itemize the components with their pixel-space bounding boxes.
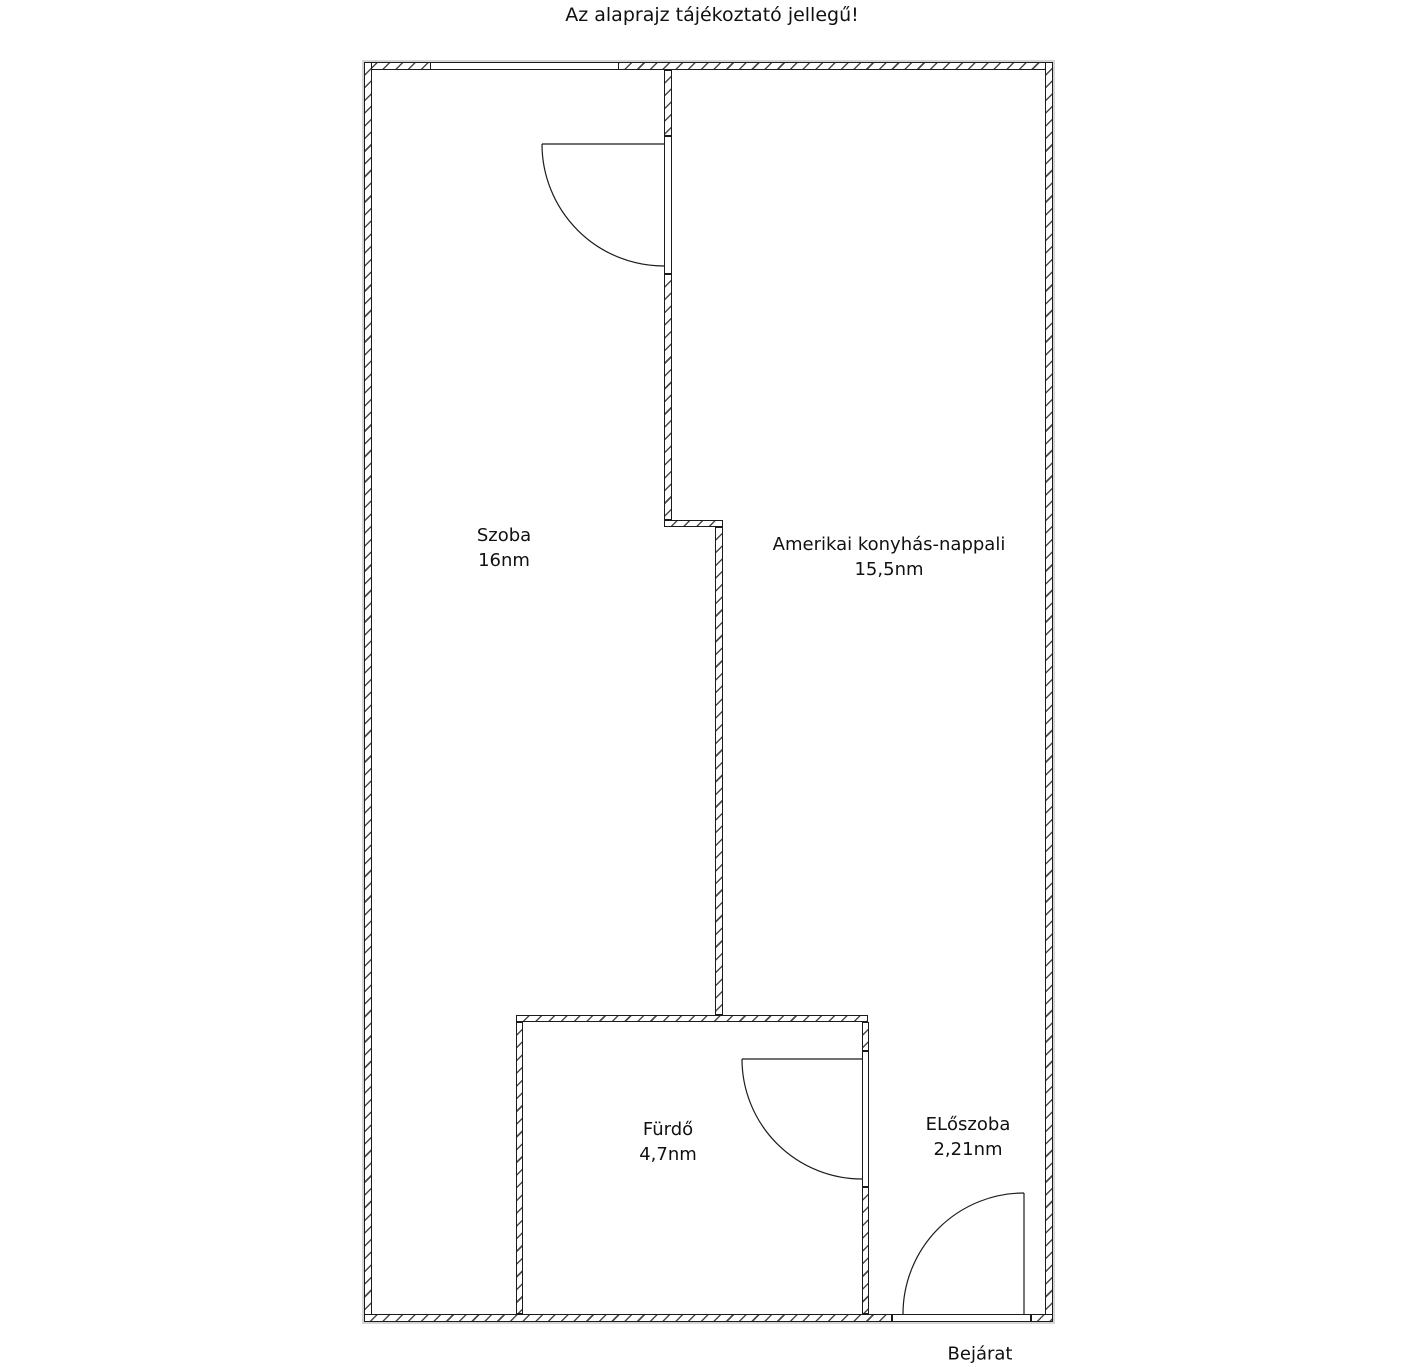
room-area-nappali: 15,5nm bbox=[773, 557, 1006, 582]
bathroom-wall-right-lower bbox=[862, 1187, 869, 1314]
room-label-nappali: Amerikai konyhás-nappali 15,5nm bbox=[773, 532, 1006, 582]
divider-wall-mid bbox=[664, 274, 672, 520]
outer-wall-bottom-left bbox=[364, 1314, 892, 1322]
divider-wall-upper bbox=[664, 70, 672, 136]
divider-wall-jog bbox=[664, 520, 723, 527]
door-szoba-jamb bbox=[664, 136, 672, 274]
room-area-furdo: 4,7nm bbox=[639, 1142, 697, 1167]
window-top-wall bbox=[430, 62, 619, 70]
entrance-label-text: Bejárat bbox=[948, 1342, 1013, 1367]
room-name-szoba: Szoba bbox=[477, 523, 531, 548]
room-label-furdo: Fürdő 4,7nm bbox=[639, 1117, 697, 1167]
entrance-threshold bbox=[892, 1314, 1031, 1322]
room-area-szoba: 16nm bbox=[477, 548, 531, 573]
outer-wall-bottom-right bbox=[1031, 1314, 1053, 1322]
entrance-label: Bejárat bbox=[948, 1342, 1013, 1367]
room-label-szoba: Szoba 16nm bbox=[477, 523, 531, 573]
room-name-eloszoba: ELőszoba bbox=[926, 1112, 1011, 1137]
door-bathroom-jamb bbox=[862, 1051, 869, 1187]
outer-wall-left bbox=[364, 62, 372, 1322]
divider-wall-lower bbox=[715, 527, 723, 1015]
outer-wall-right bbox=[1045, 62, 1053, 1322]
room-name-furdo: Fürdő bbox=[639, 1117, 697, 1142]
bathroom-wall-top bbox=[516, 1015, 868, 1022]
room-area-eloszoba: 2,21nm bbox=[926, 1137, 1011, 1162]
room-name-nappali: Amerikai konyhás-nappali bbox=[773, 532, 1006, 557]
plan-disclaimer-title: Az alaprajz tájékoztató jellegű! bbox=[565, 4, 859, 26]
bathroom-wall-right-upper bbox=[862, 1022, 869, 1051]
floorplan-canvas: Az alaprajz tájékoztató jellegű! Szoba 1… bbox=[0, 0, 1416, 1367]
room-label-eloszoba: ELőszoba 2,21nm bbox=[926, 1112, 1011, 1162]
bathroom-wall-left bbox=[516, 1022, 523, 1314]
